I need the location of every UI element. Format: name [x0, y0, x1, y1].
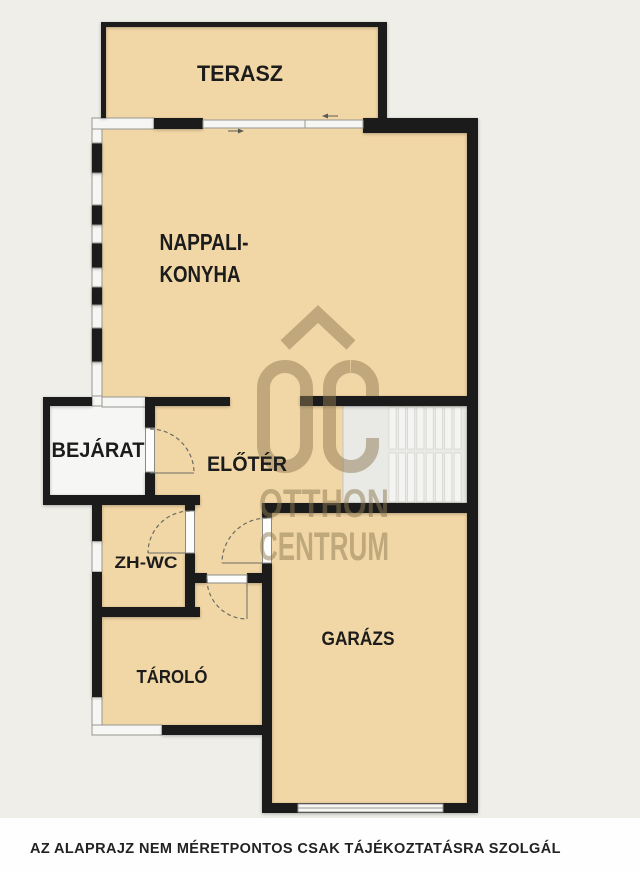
wall-terrace-right [378, 22, 387, 118]
wall-tarolo-left [92, 617, 102, 697]
wall-terrace-sill-segment [154, 118, 203, 129]
wall-zh-wc-left-upper [92, 505, 102, 541]
label-eloter: ELŐTÉR [207, 453, 287, 476]
wall-zh-wc-right-lower [185, 553, 195, 617]
wall-top-right [363, 118, 478, 133]
floor-plan-page: OTTHON CENTRUM TERASZ NAPPALI- KONYHA BE… [0, 0, 640, 872]
wall-tarolo-bottom [162, 725, 272, 735]
wall-garazs-left-lower [262, 563, 272, 813]
watermark-line2: CENTRUM [259, 525, 389, 569]
wall-eloter-top-left [147, 397, 230, 406]
wall-bejarat-left [43, 397, 50, 505]
label-nappali-line2: KONYHA [160, 261, 241, 287]
window-bejarat-top [102, 397, 147, 407]
watermark-line1: OTTHON [259, 482, 389, 526]
wall-bejarat-eloter-upper [145, 397, 155, 428]
disclaimer-text: AZ ALAPRAJZ NEM MÉRETPONTOS CSAK TÁJÉKOZ… [30, 840, 561, 857]
window-terrace-sill-left [92, 118, 154, 129]
wall-zh-wc-right-upper [185, 505, 195, 511]
sliding-door-panels [203, 120, 363, 128]
label-tarolo: TÁROLÓ [137, 666, 208, 687]
wall-right [467, 133, 478, 813]
label-zh-wc: ZH-WC [115, 553, 178, 572]
label-nappali-line1: NAPPALI- [160, 229, 249, 255]
wall-bejarat-top-left [43, 397, 92, 406]
window-zh-wc-left [92, 541, 102, 572]
garage-door [298, 804, 443, 812]
wall-zh-wc-bottom [92, 607, 200, 617]
wall-zh-wc-top [43, 495, 200, 505]
window-tarolo-left [92, 697, 102, 727]
label-garazs: GARÁZS [322, 628, 395, 650]
wall-corridor-nub [195, 573, 207, 583]
label-terasz: TERASZ [197, 61, 283, 86]
window-tarolo-bottom [92, 725, 162, 735]
wall-terrace-left [101, 22, 106, 118]
floor-plan-image: OTTHON CENTRUM TERASZ NAPPALI- KONYHA BE… [0, 0, 640, 872]
label-bejarat: BEJÁRAT [52, 439, 145, 462]
wall-terrace-top [101, 22, 387, 27]
